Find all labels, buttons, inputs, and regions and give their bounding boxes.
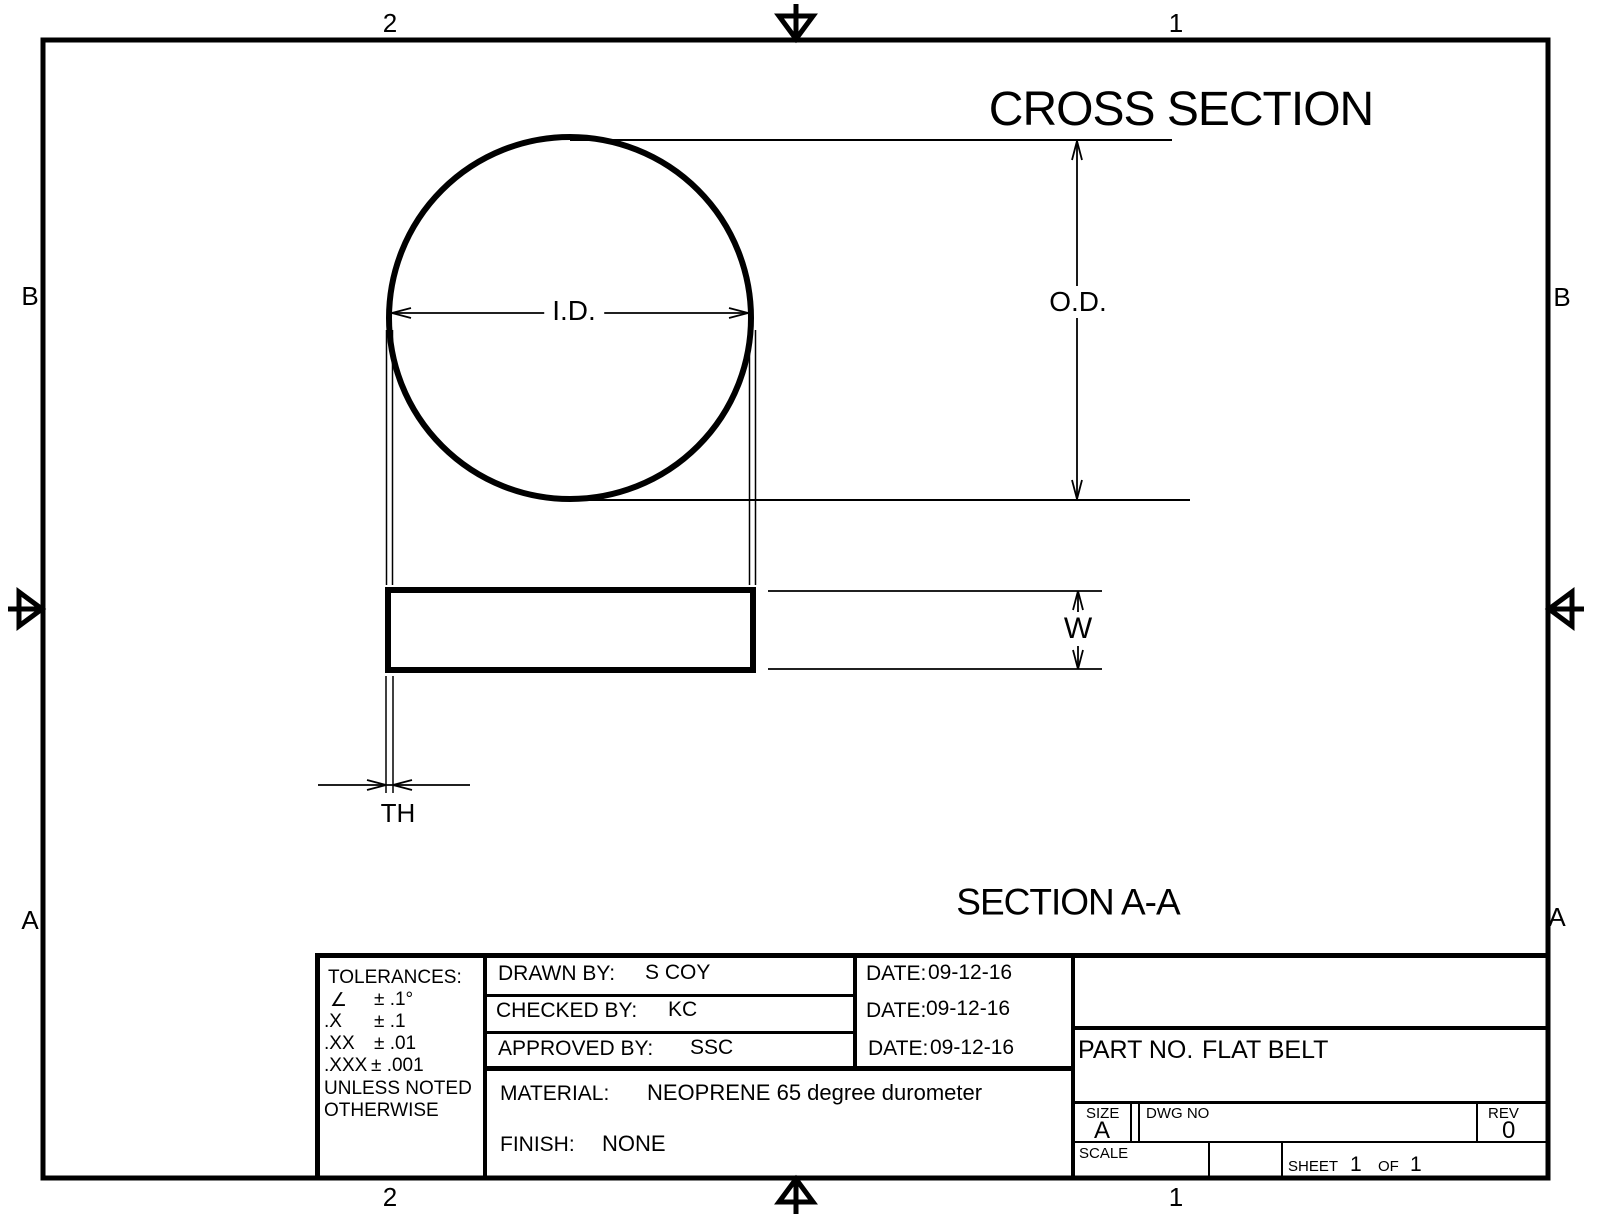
drawing-sheet: 2 1 2 1 B B A A CROSS SECTION SECTION A-… [0, 0, 1600, 1219]
title-block-v-rev-left [1476, 1103, 1478, 1141]
drawn-by-label: DRAWN BY: [498, 963, 615, 984]
od-dimension-label: O.D. [1041, 286, 1115, 318]
part-no-label: PART NO. [1078, 1038, 1193, 1063]
approved-by-label: APPROVED BY: [498, 1038, 653, 1059]
belt-section-rect [388, 590, 753, 670]
material-label: MATERIAL: [500, 1083, 609, 1104]
approved-by-value: SSC [690, 1037, 733, 1058]
view-title: CROSS SECTION [989, 86, 1373, 134]
centering-arrow-left-icon [8, 592, 42, 626]
title-block-v-dwg-left [1138, 1103, 1140, 1141]
dwg-no-label: DWG NO [1146, 1106, 1209, 1121]
sheet-label: SHEET [1288, 1159, 1338, 1174]
checked-by-value: KC [668, 999, 697, 1020]
title-block-left-border [315, 953, 320, 1178]
zone-label-right-b: B [1553, 284, 1570, 310]
zone-label-left-a: A [21, 907, 38, 933]
title-block-h-scale-top [1075, 1141, 1548, 1143]
w-dimension-label: W [1056, 612, 1100, 646]
zone-label-left-b: B [21, 283, 38, 309]
tolerances-note-line2: OTHERWISE [324, 1101, 439, 1120]
zone-label-bottom-1: 1 [1169, 1184, 1183, 1210]
section-label: SECTION A-A [956, 884, 1179, 921]
sheet-border [43, 40, 1548, 1178]
finish-label: FINISH: [500, 1134, 575, 1155]
scale-label: SCALE [1079, 1146, 1128, 1161]
zone-label-top-2: 2 [383, 10, 397, 36]
drawn-date-label: DATE: [866, 963, 926, 984]
angle-tolerance-value: ± .1° [374, 990, 413, 1009]
approved-date-value: 09-12-16 [930, 1037, 1014, 1058]
tol-xx-value: ± .01 [374, 1034, 416, 1053]
th-extension-lines [386, 676, 393, 793]
w-extension-lines [768, 591, 1102, 669]
checked-date-label: DATE: [866, 1000, 926, 1021]
centering-arrow-right-icon [1549, 592, 1584, 626]
centering-arrow-bottom-icon [779, 1179, 813, 1214]
sheet-page-number: 1 [1350, 1154, 1362, 1175]
title-block-v-sheet-left [1281, 1143, 1283, 1176]
sheet-of-label: OF [1378, 1159, 1399, 1174]
title-block-v-date-col [853, 953, 857, 1069]
title-block-v-size-right [1130, 1103, 1132, 1141]
material-value: NEOPRENE 65 degree durometer [647, 1082, 982, 1104]
drawn-date-value: 09-12-16 [928, 962, 1012, 983]
tolerances-note-line1: UNLESS NOTED [324, 1079, 472, 1098]
zone-label-right-a: A [1548, 904, 1565, 930]
zone-label-bottom-2: 2 [383, 1184, 397, 1210]
drawing-geometry [0, 0, 1600, 1219]
checked-date-value: 09-12-16 [926, 998, 1010, 1019]
checked-by-label: CHECKED BY: [496, 1000, 637, 1021]
th-dimension-label: TH [381, 800, 416, 826]
title-block-h-row2 [487, 1031, 853, 1034]
centering-arrow-top-icon [779, 4, 813, 39]
title-block-top-border [315, 953, 1550, 958]
title-block-h-partno-top [1075, 1026, 1548, 1030]
tol-x-value: ± .1 [374, 1012, 406, 1031]
title-block-v-right-col [1071, 953, 1075, 1178]
tol-xxx-value: ± .001 [371, 1056, 424, 1075]
title-block-h-row3 [487, 1066, 1071, 1071]
title-block-v-scale-right [1208, 1143, 1210, 1176]
size-value: A [1094, 1119, 1110, 1143]
tol-xx-label: .XX [324, 1034, 355, 1053]
finish-value: NONE [602, 1133, 666, 1155]
title-block-h-row1 [487, 994, 853, 997]
approved-date-label: DATE: [868, 1038, 928, 1059]
tol-x-label: .X [324, 1012, 342, 1031]
tol-xxx-label: .XXX [324, 1056, 367, 1075]
side-extension-lines [387, 330, 756, 585]
zone-label-top-1: 1 [1169, 10, 1183, 36]
sheet-total-number: 1 [1410, 1154, 1422, 1175]
part-no-value: FLAT BELT [1202, 1038, 1328, 1063]
id-dimension-label: I.D. [544, 295, 604, 327]
tolerances-header: TOLERANCES: [328, 968, 462, 987]
rev-value: 0 [1502, 1119, 1515, 1143]
drawn-by-value: S COY [645, 962, 710, 983]
angle-tolerance-icon: ∠ [330, 991, 347, 1010]
